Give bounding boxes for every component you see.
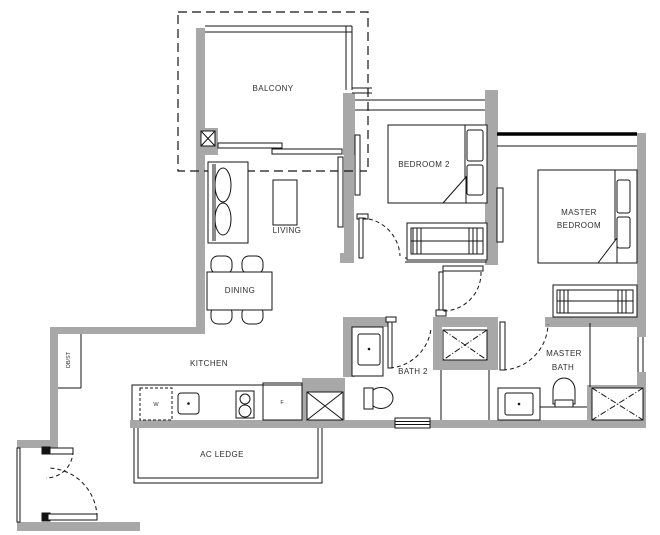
bath2-door-arc: [390, 329, 431, 368]
balcony-railing-top: [205, 26, 352, 32]
wall-hall-shaft-left: [433, 317, 442, 370]
ac-ledge-label: AC LEDGE: [200, 450, 244, 459]
floor-plan: BALCONY LIVING DINING KITCHEN BEDROOM 2 …: [0, 0, 660, 535]
wall-hall-shaft-top: [442, 317, 487, 327]
entry-door-arc-small: [46, 451, 73, 478]
bath2-vanity: [352, 327, 383, 376]
fridge-label: F: [280, 400, 284, 406]
masterbath-vanity: [498, 388, 540, 420]
sink-drain: [187, 402, 190, 405]
bedroom2-door-leaf: [359, 218, 363, 258]
bath2-label: BATH 2: [398, 367, 428, 376]
balcony-shaft-icon: [201, 131, 215, 146]
master-bedroom-label-2: BEDROOM: [557, 221, 601, 230]
floor-plan-drawing: BALCONY LIVING DINING KITCHEN BEDROOM 2 …: [0, 0, 660, 535]
wall-masterbath-top: [545, 317, 637, 327]
pillow: [467, 165, 483, 195]
hob: [236, 391, 254, 418]
dining-chair: [242, 256, 263, 274]
pillow: [617, 180, 630, 213]
balcony-railing-right: [346, 26, 352, 90]
wall-hall-shaft-right: [487, 317, 498, 370]
wall-bath2-top: [343, 317, 388, 327]
wall-kitchen-top: [55, 327, 205, 334]
wall-right-upper: [637, 133, 646, 337]
wall-balcony-right: [343, 93, 355, 155]
masterbath-door-leaf: [500, 322, 505, 370]
wall-panel-bedroom2: [355, 135, 360, 195]
bath2-toilet: [364, 388, 393, 410]
wall-kitchen-bottom: [130, 420, 304, 428]
balcony-slider-panel-2: [272, 149, 342, 154]
wall-bedroom2-stub: [340, 253, 354, 263]
living-label: LIVING: [273, 226, 302, 235]
bath2-door-cap: [386, 317, 396, 322]
foyer-left-wall: [17, 448, 20, 522]
wall-foyer-jog: [17, 440, 58, 448]
kitchen-shaft-icon: [307, 392, 343, 420]
wall-living-bedroom2: [344, 155, 354, 253]
wall-foyer-bottom: [17, 522, 140, 531]
walls: [17, 28, 646, 531]
hall-shaft-icon: [443, 330, 487, 360]
sofa: [208, 162, 248, 243]
entry-door-leaf-small: [50, 448, 73, 454]
wardrobe-master: [553, 285, 637, 317]
wall-hall-shaft-bottom: [442, 360, 487, 370]
dbst-label: DB/ST: [66, 351, 72, 368]
wall-panel-master: [497, 188, 503, 242]
masterbath-shaft-icon: [592, 388, 643, 420]
dining-label: DINING: [225, 286, 255, 295]
kitchen-label: KITCHEN: [190, 359, 228, 368]
washer-label: W: [153, 402, 159, 408]
master-door-arc: [443, 272, 481, 311]
masterbath-window: [638, 337, 643, 372]
bedroom2-label: BEDROOM 2: [398, 160, 450, 169]
living-furniture: [207, 162, 297, 324]
balcony-slider-panel-1: [218, 143, 282, 148]
bath2-door-leaf: [388, 322, 392, 368]
balcony-railing-connector: [352, 88, 372, 93]
master-door-leaf: [439, 272, 443, 312]
wall-left-mid: [50, 327, 58, 443]
masterbath-toilet: [553, 378, 575, 407]
masterbath-door-arc: [503, 324, 548, 370]
wall-left: [196, 28, 205, 334]
coffee-table: [273, 180, 297, 225]
dining-chair: [211, 256, 232, 274]
entry-door-arc-main: [48, 468, 97, 517]
pillow: [617, 217, 630, 248]
master-bedroom-label-1: MASTER: [561, 208, 597, 217]
windows: [17, 26, 643, 522]
bath2-vent-grille: [395, 418, 430, 428]
master-corridor-wall: [443, 266, 483, 271]
pillow: [467, 130, 483, 161]
bedroom2-door-arc: [362, 218, 400, 256]
master-bath-label-2: BATH: [552, 363, 574, 372]
master-bath-label-1: MASTER: [546, 349, 582, 358]
wardrobe-bedroom2: [407, 223, 487, 260]
entry-door-leaf-main: [48, 514, 97, 520]
bedroom2-window: [355, 100, 485, 110]
bedroom2-furniture: [355, 125, 487, 260]
wall-panel-living: [338, 157, 343, 227]
entry-door-hinge-1: [42, 447, 50, 454]
balcony-label: BALCONY: [252, 84, 293, 93]
